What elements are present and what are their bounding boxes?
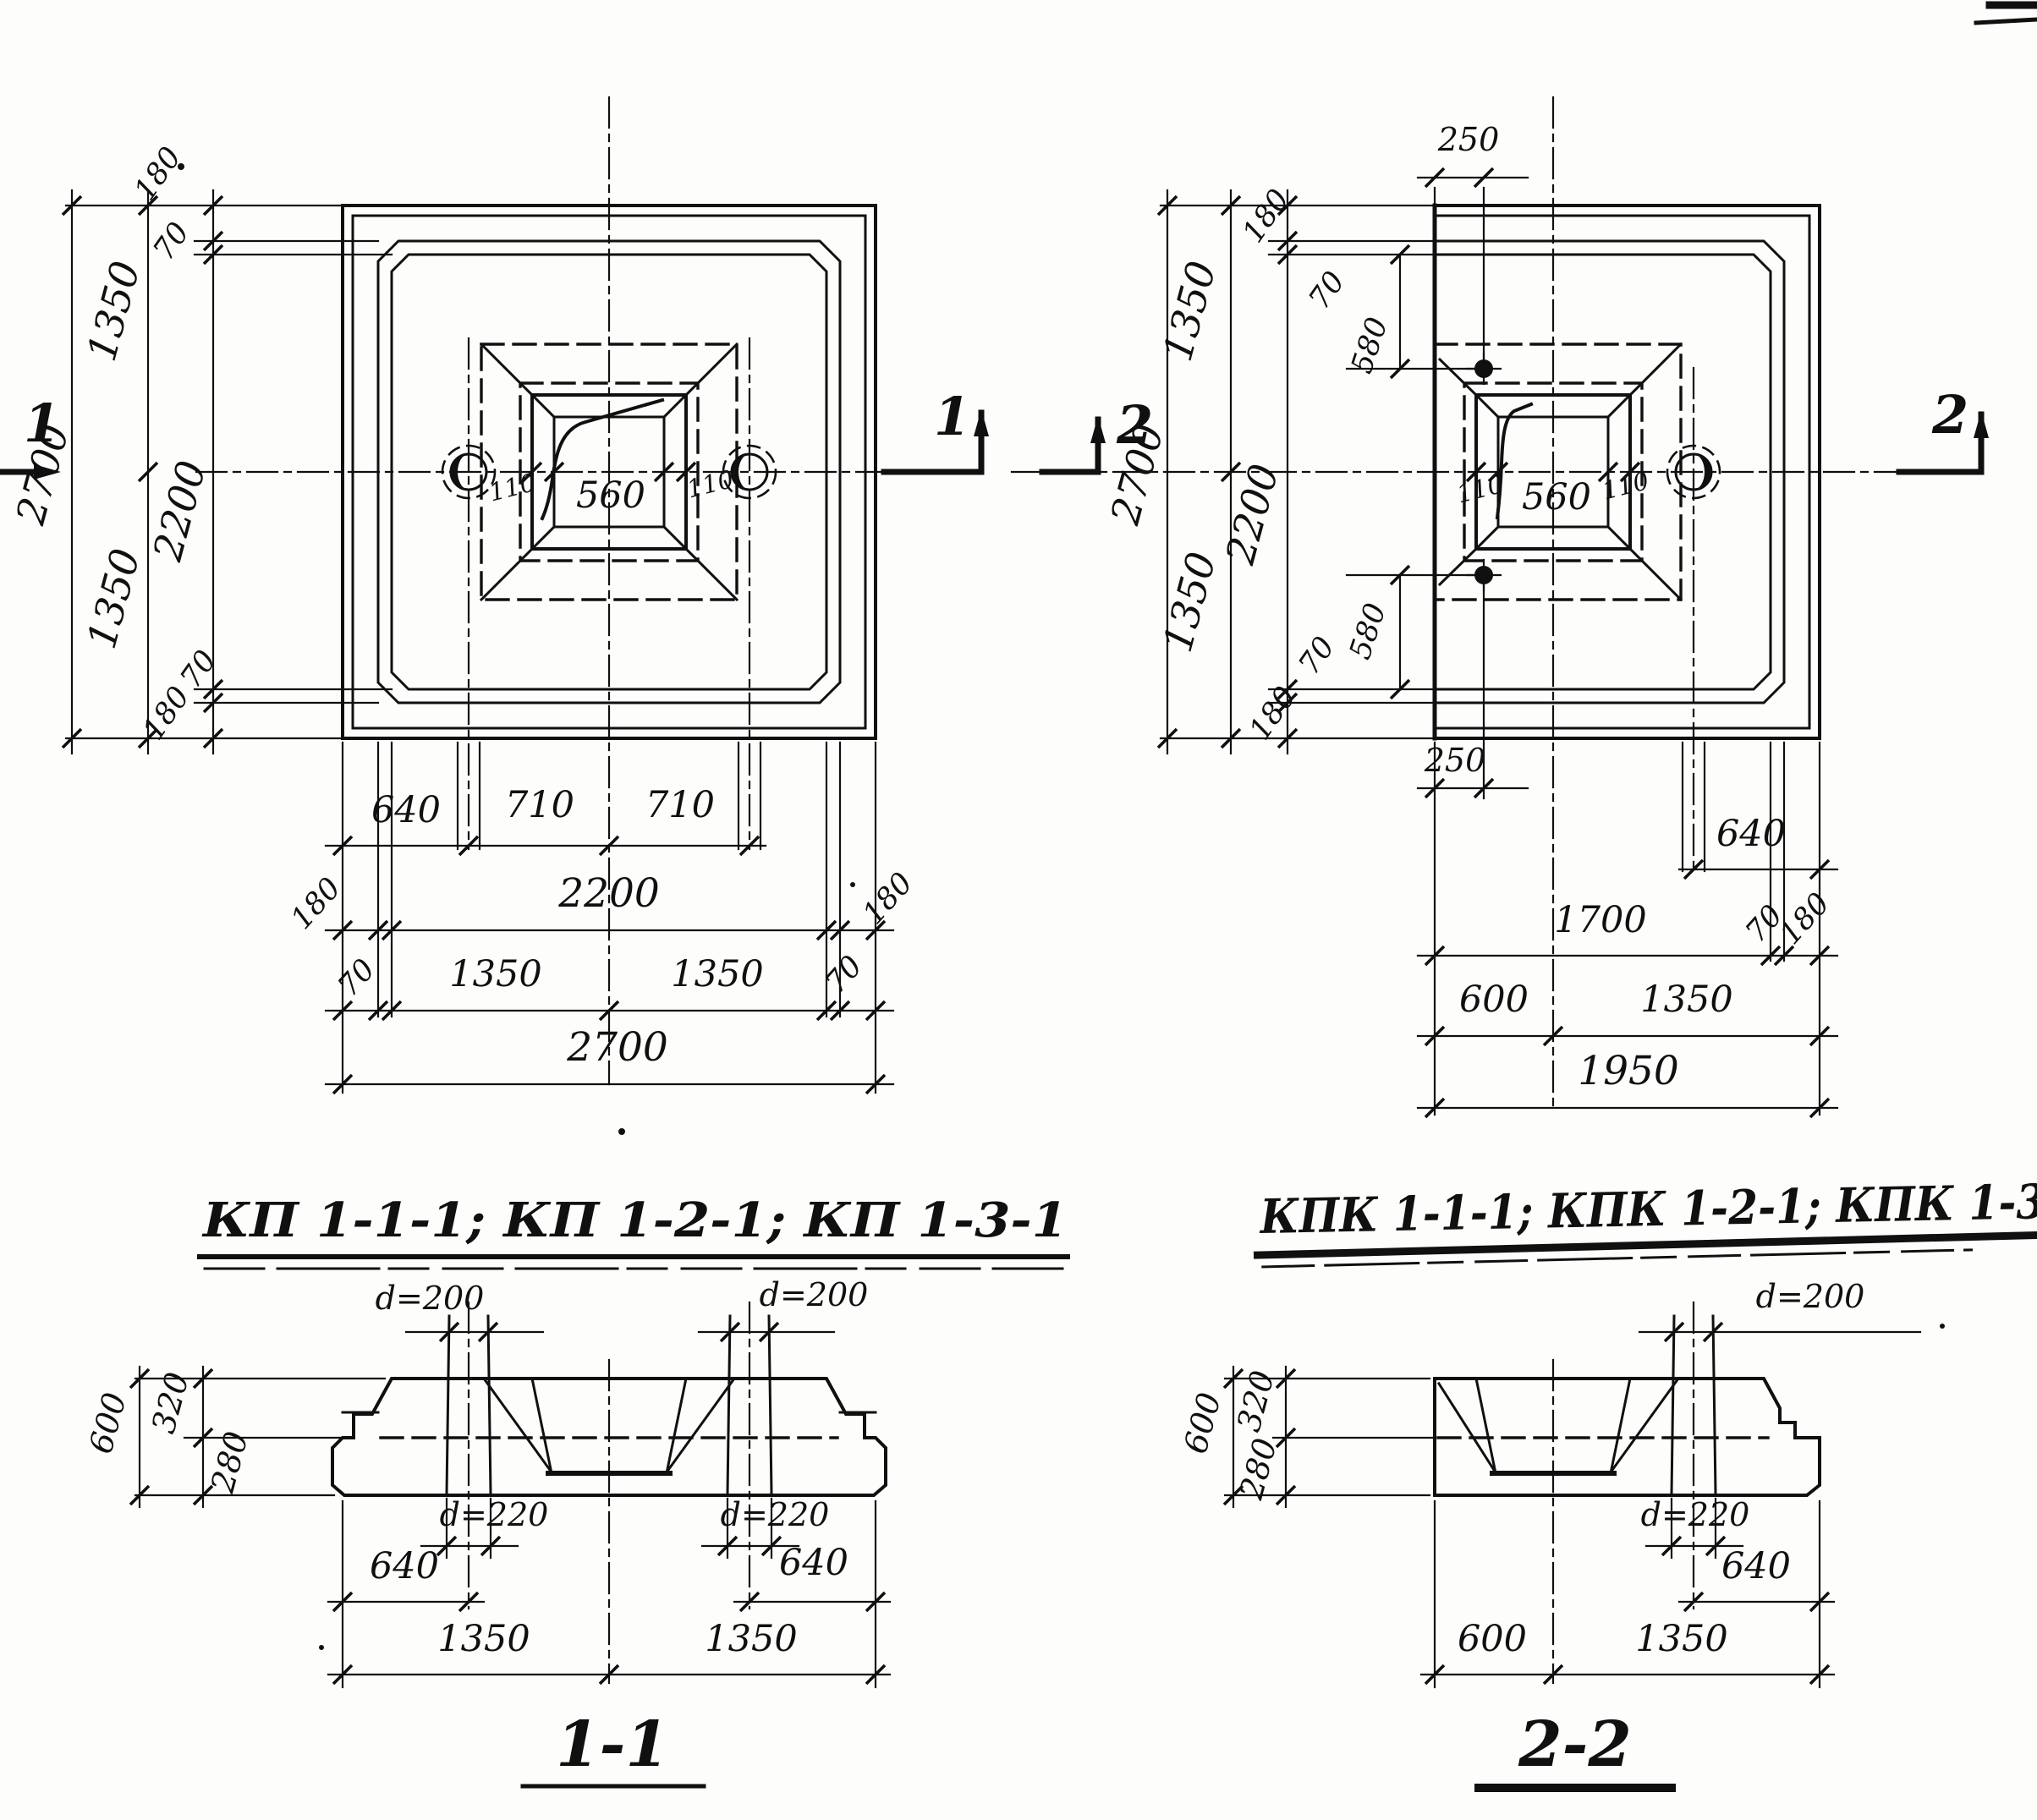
dim-label: 1350 <box>705 1618 797 1660</box>
dim-label: 1350 <box>79 544 150 654</box>
section-1-1: d=200 d=200 600 320 280 d=220 d=220 640 … <box>82 1276 890 1786</box>
plan-right: 2 2 250 1350 2700 2200 <box>1012 97 2037 1267</box>
dim-label: 2700 <box>1102 419 1173 530</box>
torn-edge-mark <box>1976 19 2037 23</box>
dim-label: 1350 <box>671 953 763 995</box>
plan-right-dim-chains: 1350 2700 2200 1350 180 70 580 70 580 18… <box>1102 184 1474 754</box>
plan-left-title: КП 1-1-1; КП 1-2-1; КП 1-3-1 <box>200 1192 1068 1269</box>
ink-speckle <box>319 1645 324 1650</box>
dim-label: 1700 <box>1554 899 1646 941</box>
ink-speckle <box>178 163 184 170</box>
dim-label: 2700 <box>566 1024 668 1071</box>
plan-right-bottom-dims: 250 640 1700 70 180 600 1350 1950 <box>1418 585 1837 1117</box>
dim-label: d=220 <box>721 1496 830 1533</box>
dim-label: 180 <box>1243 681 1303 747</box>
dim-label: 640 <box>1721 1545 1791 1587</box>
dim-label: 1350 <box>1640 979 1732 1021</box>
dim-label: d=200 <box>760 1276 869 1313</box>
plan-left: 1 1 180 70 1350 2700 2200 1350 70 180 11… <box>2 97 1068 1269</box>
dim-label: 710 <box>645 784 715 826</box>
section-cut-marker-2-right: 2 <box>1899 384 1989 472</box>
dim-label: 250 <box>1424 742 1486 779</box>
dim-label: d=220 <box>1641 1496 1750 1533</box>
dim-label: 180 <box>285 871 348 935</box>
dim-label: 1350 <box>449 953 541 995</box>
ink-speckle <box>850 882 855 887</box>
section-1-1-title: 1-1 <box>523 1708 704 1786</box>
dim-label: 110 <box>684 464 737 503</box>
dim-label: 640 <box>370 1545 439 1587</box>
dim-label: 600 <box>1458 1618 1527 1660</box>
section-title: 2-2 <box>1518 1708 1632 1781</box>
dim-label: 1350 <box>1635 1618 1727 1660</box>
dim-label: 560 <box>576 474 645 517</box>
plan-title: КПК 1-1-1; КПК 1-2-1; КПК 1-3-1 <box>1258 1173 2037 1245</box>
dim-label: 600 <box>1177 1389 1228 1457</box>
dim-label: 1350 <box>437 1618 530 1660</box>
plan-left-centerlines <box>196 97 887 1084</box>
dim-label: 250 <box>1437 121 1500 158</box>
dim-label: d=200 <box>1756 1278 1865 1315</box>
dim-label: 70 <box>1303 266 1352 315</box>
dim-label: 180 <box>857 866 920 930</box>
dim-label: 180 <box>1774 886 1837 951</box>
ink-speckle <box>1940 1324 1945 1329</box>
dim-label: d=220 <box>440 1496 549 1533</box>
ink-speckle <box>618 1128 625 1135</box>
dim-label: 640 <box>371 789 441 831</box>
section-2-2: d=200 600 320 280 d=220 640 600 1350 2-2 <box>1177 1278 1920 1788</box>
dim-label: 320 <box>1230 1367 1282 1435</box>
section-2-2-dims: d=200 600 320 280 d=220 640 600 1350 <box>1177 1278 1920 1687</box>
dim-label: 1350 <box>79 256 150 366</box>
dim-label: 180 <box>128 141 188 207</box>
plan-right-title: КПК 1-1-1; КПК 1-2-1; КПК 1-3-1 <box>1256 1173 2037 1267</box>
plan-title: КП 1-1-1; КП 1-2-1; КП 1-3-1 <box>201 1192 1068 1248</box>
dim-label: 580 <box>1343 600 1393 664</box>
dim-label: d=200 <box>376 1280 485 1317</box>
dim-label: 710 <box>505 784 574 826</box>
dim-label: 600 <box>1459 979 1529 1021</box>
dim-label: 180 <box>136 681 196 747</box>
dim-label: 280 <box>1233 1434 1285 1504</box>
dim-label: 640 <box>1716 813 1786 855</box>
foundation-drawing: 1 1 180 70 1350 2700 2200 1350 70 180 11… <box>0 0 2037 1820</box>
dim-label: 70 <box>332 953 382 1004</box>
dim-label: 70 <box>1293 631 1342 681</box>
plan-left-bottom-dims: 640 710 710 180 2200 180 70 1350 1350 70… <box>285 743 920 1094</box>
dim-label: 560 <box>1522 476 1591 518</box>
section-cut-marker-1-right: 1 <box>884 386 989 472</box>
section-2-2-title: 2-2 <box>1479 1708 1672 1788</box>
plan-left-dim-chains: 180 70 1350 2700 2200 1350 70 180 <box>8 141 392 754</box>
section-title: 1-1 <box>556 1708 669 1781</box>
section-mark-label: 1 <box>934 386 970 447</box>
dim-label: 2200 <box>145 456 216 567</box>
dim-label: 1350 <box>1155 547 1226 657</box>
section-1-1-body <box>332 1302 886 1683</box>
blueprint-page: 1 1 180 70 1350 2700 2200 1350 70 180 11… <box>0 0 2037 1820</box>
dim-label: 1950 <box>1578 1048 1679 1094</box>
dim-label: 70 <box>147 217 196 266</box>
dim-label: 600 <box>82 1389 134 1457</box>
section-mark-label: 2 <box>1931 384 1968 446</box>
dim-label: 1350 <box>1155 256 1226 366</box>
dim-label: 640 <box>779 1542 848 1584</box>
dim-label: 2200 <box>557 870 660 917</box>
